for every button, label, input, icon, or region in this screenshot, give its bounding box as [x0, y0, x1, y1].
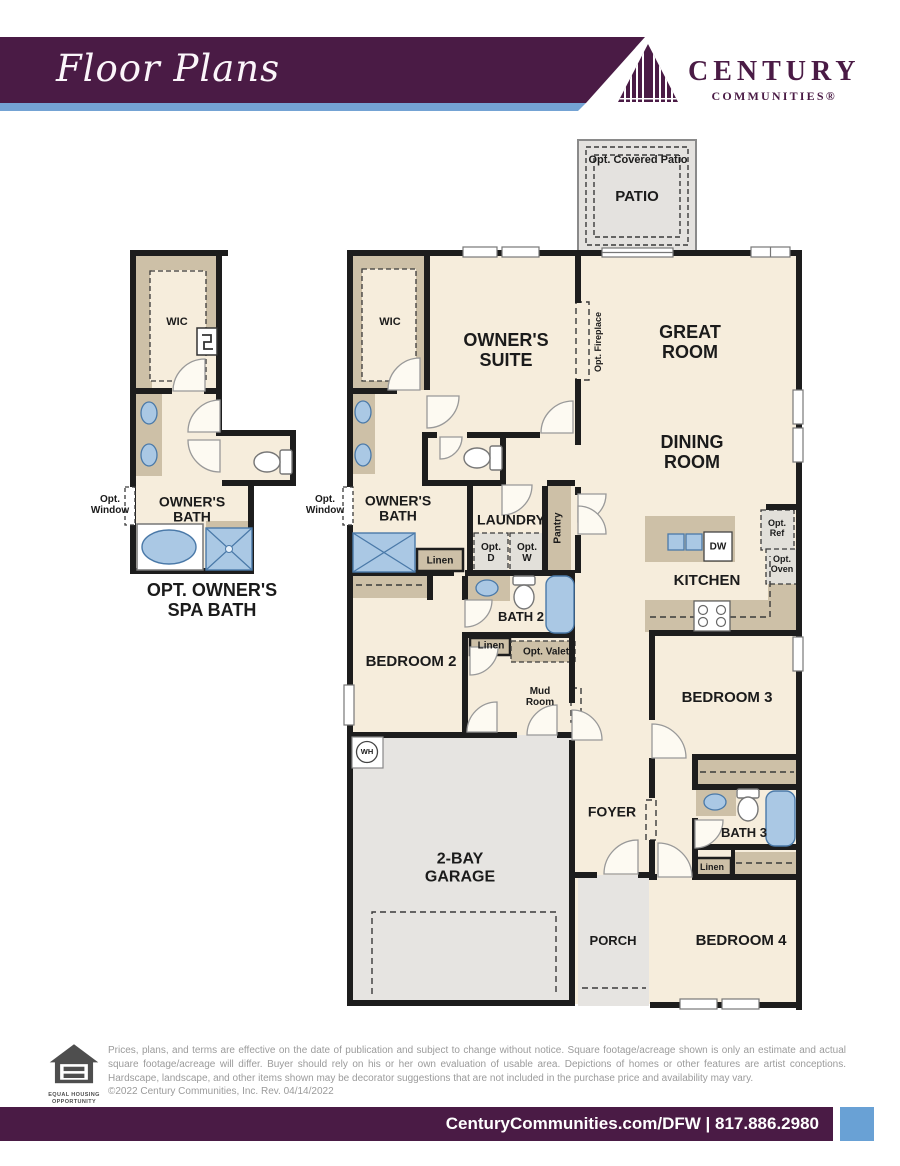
label-bath3: BATH 3 [721, 826, 767, 840]
floor-plan-page: Floor Plans CENTURY COMMUNITIES® [0, 0, 900, 1166]
copyright-text: ©2022 Century Communities, Inc. Rev. 04/… [108, 1085, 846, 1099]
label-bedroom3: BEDROOM 3 [682, 690, 773, 707]
equal-housing-logo: EQUAL HOUSING OPPORTUNITY [45, 1043, 103, 1105]
label-foyer: FOYER [588, 804, 636, 819]
stove-icon [694, 601, 730, 631]
label-opt-dryer: Opt. D [481, 542, 501, 564]
eho-text-line1: EQUAL HOUSING [48, 1092, 100, 1098]
label-owners-bath-spa: OWNER'S BATH [159, 495, 225, 526]
eho-text-line2: OPPORTUNITY [52, 1099, 96, 1105]
label-mud-room: Mud Room [526, 686, 554, 708]
shower-icon-spa [206, 528, 252, 570]
footer-contact-text: CenturyCommunities.com/DFW | 817.886.298… [446, 1114, 819, 1134]
disclaimer-body: Prices, plans, and terms are effective o… [108, 1045, 846, 1084]
label-linen-1: Linen [427, 556, 454, 567]
label-wic-main: WIC [379, 316, 400, 328]
label-opt-covered-patio: Opt. Covered Patio [588, 154, 687, 166]
label-wic-spa: WIC [166, 316, 187, 328]
label-bedroom4: BEDROOM 4 [696, 933, 787, 950]
label-bath2: BATH 2 [498, 610, 544, 624]
label-opt-window-spa: Opt. Window [91, 494, 129, 516]
floor-plan-drawing [0, 0, 900, 1166]
label-water-heater: WH [361, 748, 374, 756]
label-owners-bath-main: OWNER'S BATH [365, 494, 431, 525]
label-opt-window-main: Opt. Window [306, 494, 344, 516]
label-owners-suite: OWNER'S SUITE [463, 331, 548, 371]
label-bedroom2: BEDROOM 2 [366, 654, 457, 671]
label-kitchen: KITCHEN [674, 573, 741, 590]
label-garage: 2-BAY GARAGE [425, 850, 495, 885]
closet-rod-icon [197, 328, 217, 355]
label-opt-oven: Opt. Oven [771, 555, 794, 575]
label-opt-valet: Opt. Valet [523, 647, 569, 658]
footer-accent-square [840, 1107, 874, 1141]
label-opt-ref: Opt. Ref [768, 519, 786, 539]
label-laundry: LAUNDRY [477, 512, 545, 527]
label-pantry: Pantry [553, 512, 564, 543]
footer-contact-bar: CenturyCommunities.com/DFW | 817.886.298… [0, 1107, 833, 1141]
label-spa-bath-title: OPT. OWNER'S SPA BATH [147, 581, 277, 621]
label-great-room: GREAT ROOM [659, 323, 721, 363]
disclaimer-text: Prices, plans, and terms are effective o… [108, 1044, 846, 1099]
label-dishwasher: DW [710, 542, 727, 553]
equal-housing-icon [48, 1043, 100, 1087]
label-patio: PATIO [615, 189, 659, 206]
shower-icon-main [353, 533, 415, 572]
label-dining-room: DINING ROOM [661, 433, 724, 473]
label-linen-2: Linen [478, 641, 505, 652]
label-opt-washer: Opt. W [517, 542, 537, 564]
label-porch: PORCH [590, 934, 637, 948]
tub-icon-spa [137, 524, 203, 570]
label-linen-3: Linen [700, 863, 724, 873]
label-opt-fireplace: Opt. Fireplace [594, 312, 604, 372]
